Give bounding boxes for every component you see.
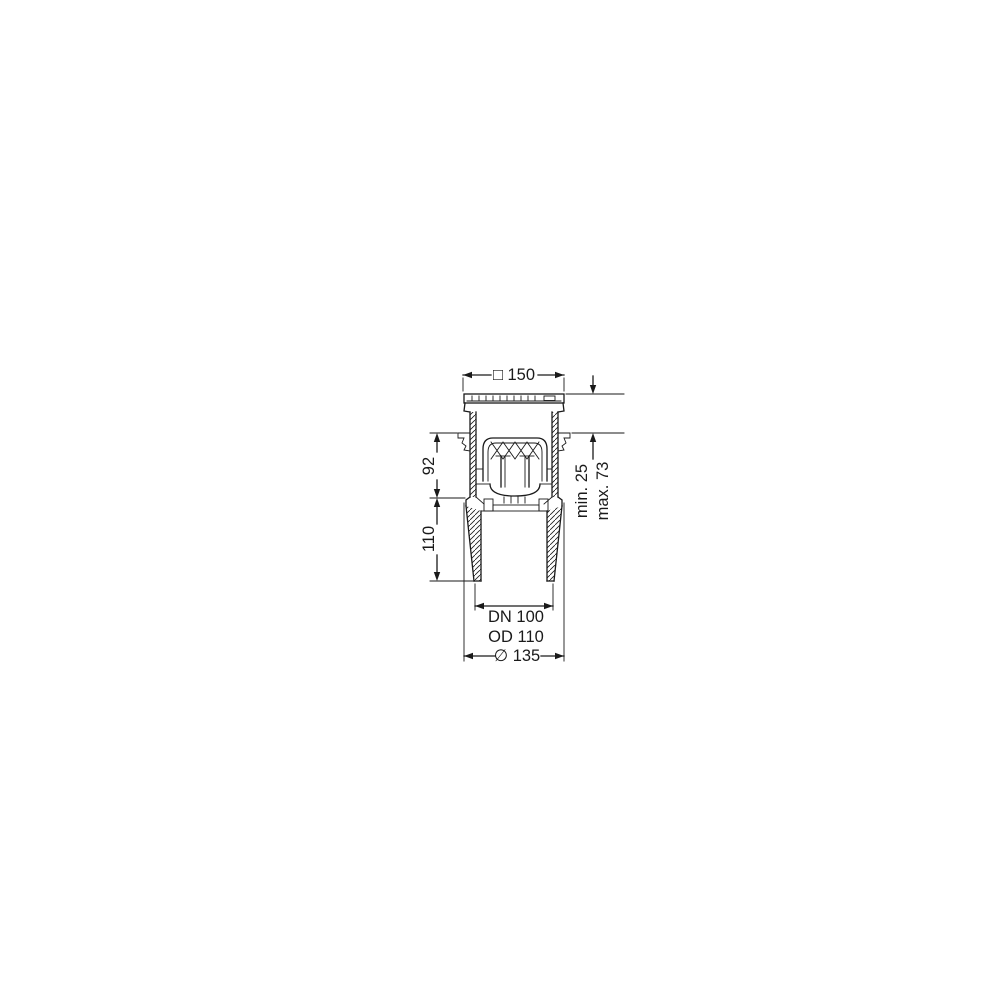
label-top-width: □ 150 (493, 366, 535, 384)
label-install-min: min. 25 (573, 464, 591, 518)
seal-end-left (484, 499, 493, 511)
seal-end-right (539, 499, 548, 511)
label-install-max: max. 73 (594, 462, 612, 521)
dimension-install-depth: min. 25 max. 73 (566, 376, 624, 520)
floor-drain-technical-drawing: □ 150 min. 25 max. 73 92 110 D (0, 0, 1000, 1000)
flange-step-right (558, 497, 562, 506)
fixing-clip-left (458, 433, 470, 451)
label-outlet-nominal: DN 100 (488, 608, 544, 626)
seal-ring (493, 505, 539, 511)
odour-trap (476, 438, 552, 503)
dimension-top-width: □ 150 (463, 366, 564, 391)
flange-step-left (466, 497, 470, 506)
label-lower-height: 110 (420, 526, 438, 552)
upper-body (458, 412, 570, 497)
grate-cover (464, 394, 564, 412)
dimension-lower-height: 110 (420, 498, 473, 581)
label-body-diameter: ∅ 135 (494, 647, 541, 665)
frame-lip-left (464, 403, 470, 412)
outlet-socket (466, 497, 562, 581)
trap-bowl (490, 484, 540, 496)
label-outlet-outer: OD 110 (488, 628, 544, 646)
dimension-outlet: DN 100 OD 110 (475, 584, 553, 646)
label-upper-height: 92 (420, 457, 438, 475)
dimension-upper-height: 92 (420, 433, 457, 498)
frame-lip-right (558, 403, 564, 412)
fixing-clip-right (558, 433, 570, 451)
drain-body (458, 394, 570, 581)
drawing-page: □ 150 min. 25 max. 73 92 110 D (0, 0, 1000, 1000)
